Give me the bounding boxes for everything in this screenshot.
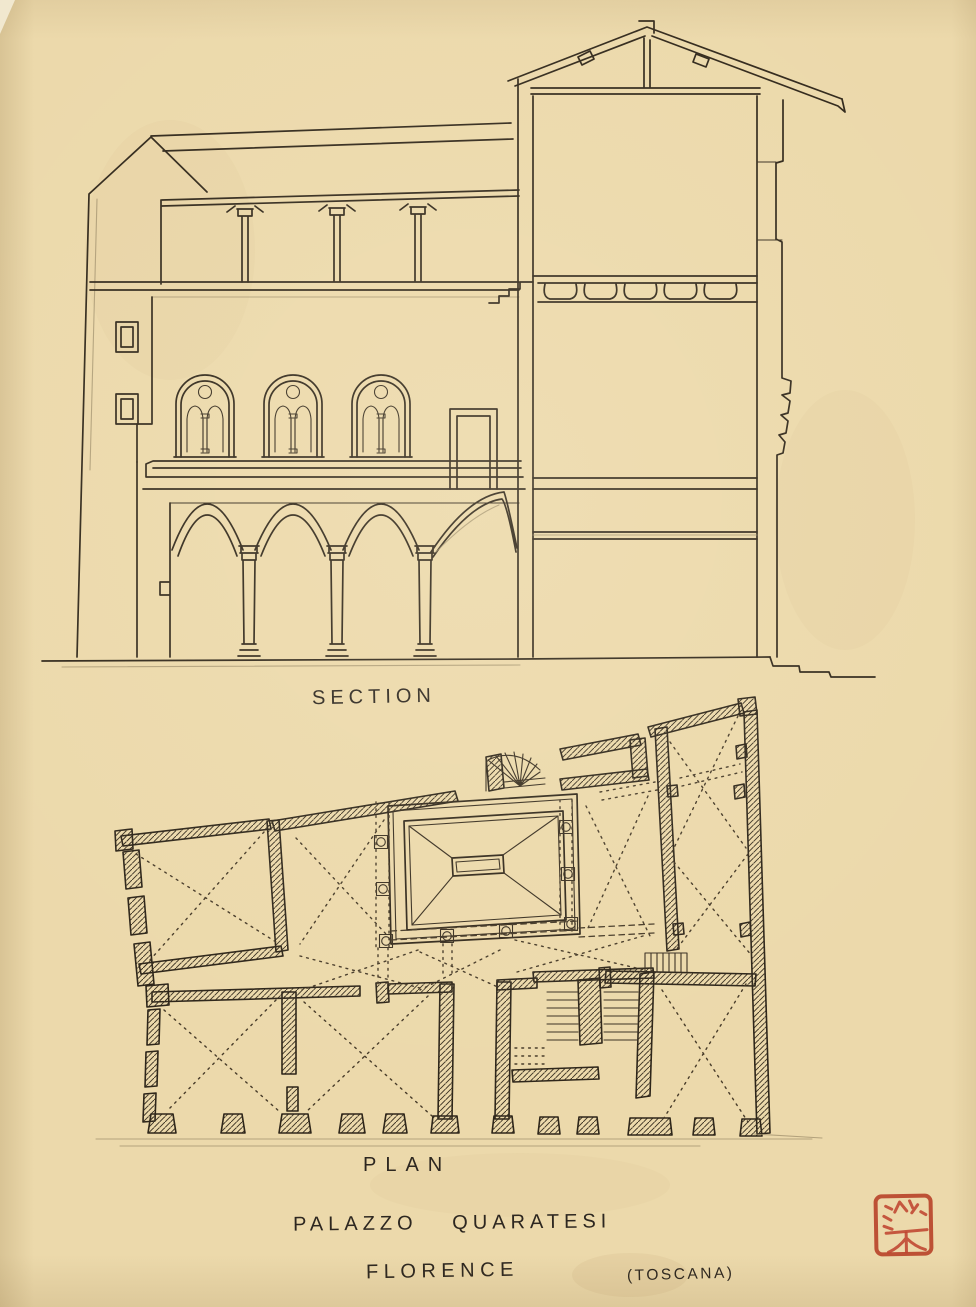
plan-label: PLAN <box>363 1154 451 1177</box>
comb-stair <box>645 953 687 972</box>
red-seal-stamp <box>875 1196 931 1255</box>
main-staircase <box>515 992 638 1064</box>
plan-drawing <box>96 697 822 1146</box>
city-label: FLORENCE <box>366 1259 519 1285</box>
courtyard <box>388 794 580 944</box>
region-label: (TOSCANA) <box>627 1265 735 1286</box>
architectural-sketch <box>0 0 976 1307</box>
bifora-window <box>174 375 236 457</box>
section-label: SECTION <box>312 685 436 711</box>
building-title: PALAZZO QUARATESI <box>293 1210 612 1236</box>
sketch-page: SECTION PLAN PALAZZO QUARATESI FLORENCE … <box>0 0 976 1307</box>
bifora-window <box>262 375 324 457</box>
bifora-window <box>350 375 412 457</box>
